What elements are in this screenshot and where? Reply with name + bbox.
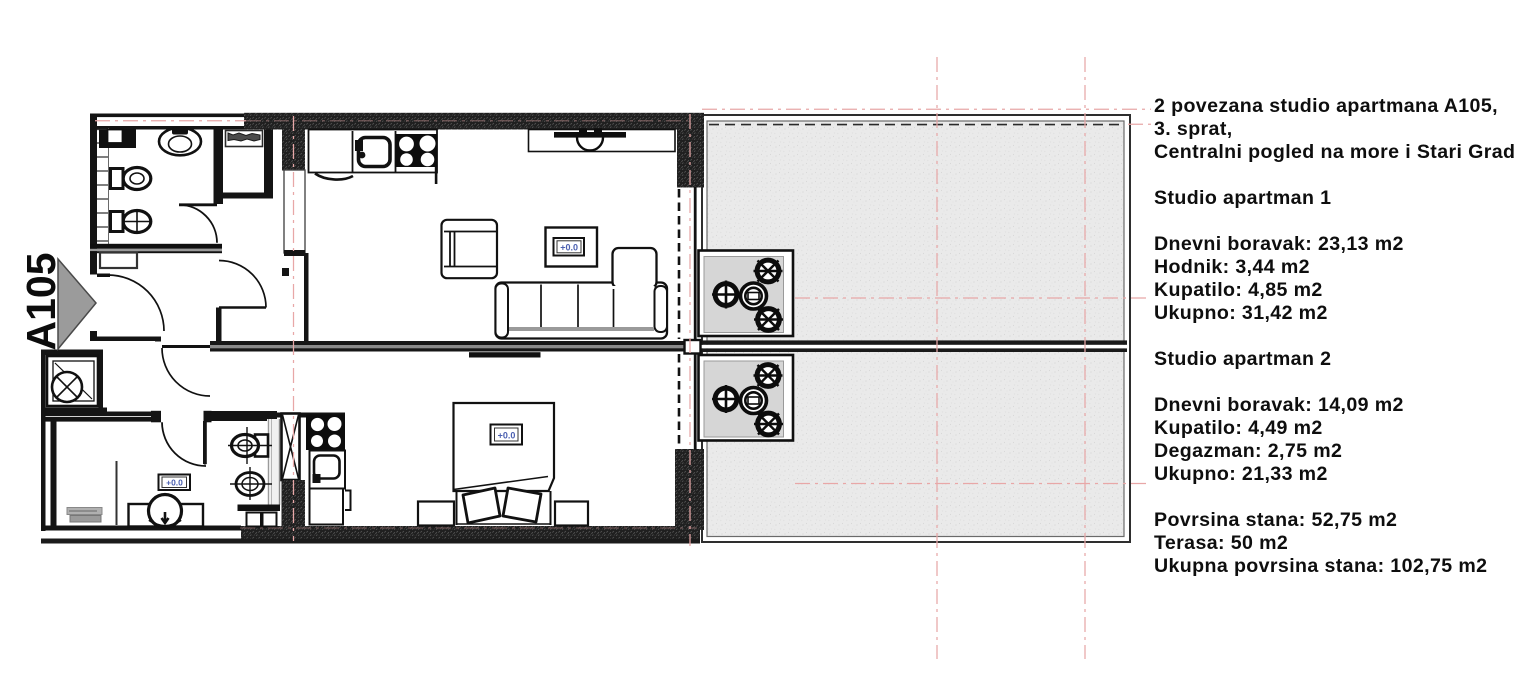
svg-text:+0.0: +0.0 (560, 243, 578, 253)
svg-text:A105: A105 (18, 252, 64, 350)
svg-text:+0.0: +0.0 (166, 478, 183, 488)
svg-text:+0.0: +0.0 (498, 431, 516, 441)
